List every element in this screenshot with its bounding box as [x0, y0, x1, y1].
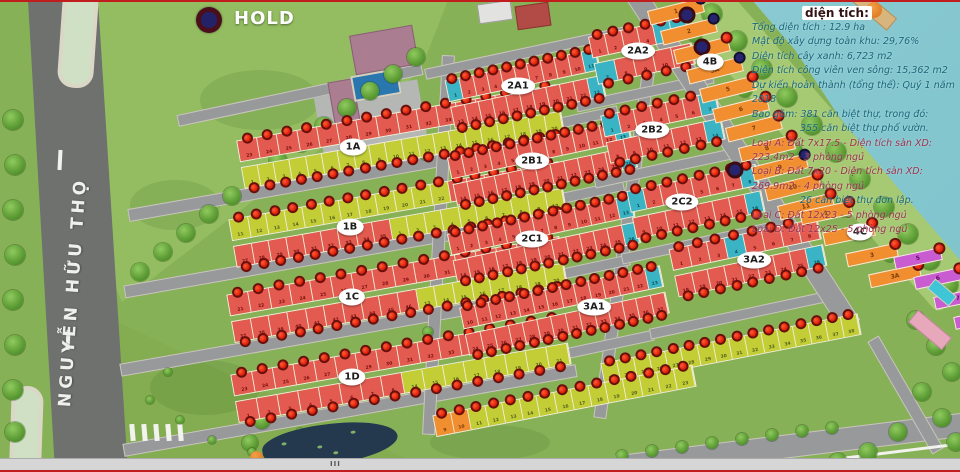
block-label: 2C1 [515, 231, 548, 248]
lot[interactable]: 37 [650, 293, 668, 316]
lot[interactable]: 21 [546, 344, 570, 367]
tree-icon [407, 48, 425, 66]
tree-icon [338, 99, 356, 117]
info-line: Loại C: Đất 12x23 - 5 phòng ngủ [742, 209, 958, 223]
tree-icon [200, 205, 218, 223]
tree-icon [3, 380, 23, 400]
info-line: Loại B: Đất 7x20 - Diện tích sàn XD: 269… [742, 165, 958, 194]
tree-icon [3, 290, 23, 310]
tree-icon [5, 245, 25, 265]
lot[interactable]: 26 [806, 245, 826, 268]
tree-icon [384, 65, 402, 83]
tree-icon [3, 200, 23, 220]
block-label: 1B [337, 219, 364, 236]
block-label: 2A1 [501, 78, 535, 95]
tree-icon [676, 441, 688, 453]
block-label: 1A [340, 139, 367, 156]
tree-icon [177, 224, 195, 242]
tree-icon [208, 436, 216, 444]
block-label: 2C2 [665, 194, 698, 211]
building-red-roof [514, 2, 551, 30]
info-line: Dự kiến hoàn thành (tổng thể): Quý 1 năm… [742, 79, 958, 108]
tree-icon [706, 437, 718, 449]
block-label: 4B [697, 54, 724, 71]
scrollbar-handle[interactable]: III [330, 460, 341, 468]
info-line: Loại A: Đất 7x17.5 - Diện tích sàn XD: 2… [742, 137, 958, 166]
tree-icon [154, 243, 172, 261]
info-line: Loại D: Đất 12x25 - 5 phòng ngủ [742, 223, 958, 237]
building [477, 0, 513, 24]
info-panel: diện tích: Tổng diện tích : 12.9 haMật đ… [742, 2, 958, 238]
tree-icon [826, 422, 838, 434]
tree-icon [889, 423, 907, 441]
tree-icon [796, 425, 808, 437]
info-line: Bao gồm: 381 căn biệt thự, trong đó: [742, 108, 958, 122]
tree-icon [5, 422, 25, 442]
info-lines: Tổng diện tích : 12.9 haMật độ xây dựng … [742, 21, 958, 238]
block-label: 2B2 [635, 122, 669, 139]
info-line: Diện tích công viên ven sông: 15,362 m2 [742, 64, 958, 78]
info-panel-title: diện tích: [802, 6, 872, 20]
lot[interactable]: 38 [841, 314, 861, 337]
lot[interactable]: 20 [545, 264, 567, 287]
info-line: Diện tích cây xanh: 6,723 m2 [742, 50, 958, 64]
tree-icon [933, 409, 951, 427]
tree-icon [5, 335, 25, 355]
hold-legend-dot-icon [196, 7, 222, 33]
tree-icon [423, 327, 433, 337]
tree-icon [3, 110, 23, 130]
hold-dot-icon [679, 7, 696, 24]
tree-icon [913, 383, 931, 401]
tree-icon [146, 396, 154, 404]
block-label: 2B1 [515, 153, 549, 170]
info-line: 355 căn biệt thự phố vườn. [742, 122, 958, 136]
block-label: 2A2 [621, 43, 655, 60]
block-label: 1C [339, 289, 365, 306]
lot[interactable]: 23 [674, 366, 695, 389]
lot[interactable]: 23 [645, 266, 663, 289]
tree-icon [176, 416, 184, 424]
lot[interactable]: 20 [544, 112, 563, 135]
tree-icon [766, 429, 778, 441]
info-line: Mật độ xây dựng toàn khu: 29,76% [742, 35, 958, 49]
info-line: Tổng diện tích : 12.9 ha [742, 21, 958, 35]
top-border-line [0, 0, 960, 2]
tree-icon [164, 368, 172, 376]
tree-icon [646, 445, 658, 457]
hold-legend-label: HOLD [234, 8, 295, 29]
tree-icon [131, 263, 149, 281]
villa-lot[interactable]: 8 [953, 307, 960, 330]
road-median [57, 0, 100, 89]
site-plan-map: NGUYỄN HỮU THỌ 2324252627282930313233343… [0, 0, 960, 472]
tree-icon [943, 363, 960, 381]
info-line: 26 căn biệt thự đơn lập. [742, 194, 958, 208]
tree-icon [947, 433, 960, 451]
tree-icon [361, 82, 379, 100]
tree-icon [223, 187, 241, 205]
block-label: 3A2 [737, 252, 771, 269]
hold-dot-icon [727, 162, 744, 179]
block-label: 3A1 [577, 299, 611, 316]
tree-icon [736, 433, 748, 445]
block-label: 1D [338, 369, 365, 386]
villa-lot[interactable]: 3 [845, 243, 899, 268]
tree-icon [5, 155, 25, 175]
